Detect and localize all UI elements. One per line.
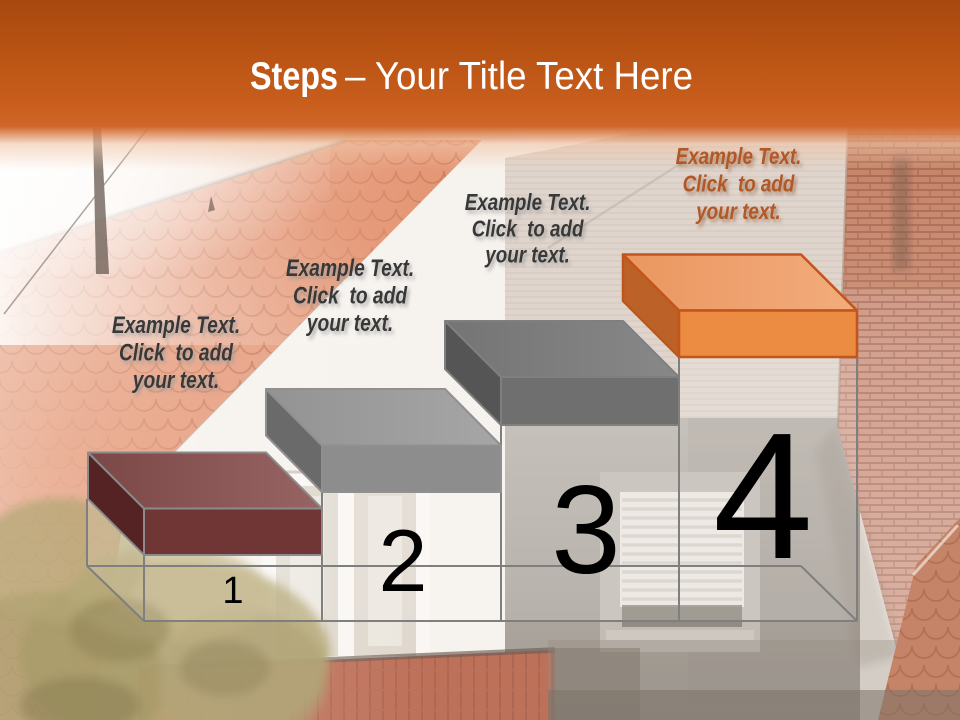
svg-text:4: 4 <box>713 396 813 597</box>
svg-text:3: 3 <box>551 461 621 600</box>
svg-text:Click to add: Click to add <box>472 215 585 242</box>
svg-text:Example Text.: Example Text. <box>286 254 414 282</box>
svg-text:your text.: your text. <box>695 198 780 225</box>
svg-text:Example Text.: Example Text. <box>112 311 240 339</box>
svg-text:Click to add: Click to add <box>119 338 234 366</box>
svg-text:Example Text.: Example Text. <box>465 189 591 216</box>
svg-text:1: 1 <box>222 570 243 612</box>
svg-text:your text.: your text. <box>484 242 569 269</box>
svg-text:Example Text.: Example Text. <box>676 143 802 170</box>
svg-text:your text.: your text. <box>132 366 219 394</box>
svg-text:2: 2 <box>379 511 428 610</box>
svg-text:Click to add: Click to add <box>293 281 408 309</box>
svg-text:your text.: your text. <box>306 309 393 337</box>
svg-text:Click to add: Click to add <box>683 171 796 198</box>
